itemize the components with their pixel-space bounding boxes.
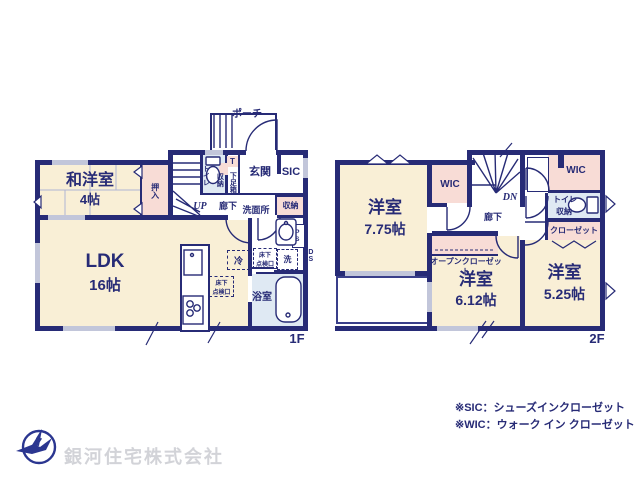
floor1-label: 1F <box>282 331 312 347</box>
window <box>63 326 115 331</box>
company-logo-icon <box>12 424 62 472</box>
toilet-label-1f: トイレ <box>201 158 209 192</box>
ldk-size: 16帖 <box>55 277 155 295</box>
wall <box>520 240 525 326</box>
wall <box>275 197 277 215</box>
sic-label: SIC <box>278 166 304 179</box>
wall <box>168 150 173 218</box>
hallway-label-2f: 廊下 <box>478 212 508 223</box>
stairs-up-label: UP <box>188 201 212 213</box>
wic-entry-strip <box>527 157 549 192</box>
toilet-storage-label: 収納 <box>215 167 223 193</box>
open-closet-fill <box>432 236 498 256</box>
kitchen-counter <box>180 244 210 332</box>
balcony <box>336 276 432 324</box>
window <box>437 326 478 331</box>
wall <box>432 231 498 236</box>
window <box>48 215 85 220</box>
room3-name: 洋室 <box>527 263 602 283</box>
bird-wing <box>32 429 42 446</box>
entrance-opening <box>246 150 276 155</box>
shoe-box-t-label: T <box>228 157 237 167</box>
washer-space: 洗 <box>277 249 298 270</box>
fridge-space: 冷 <box>227 250 250 270</box>
wall <box>472 150 605 155</box>
floor2-label: 2F <box>582 331 612 347</box>
wall <box>432 203 447 207</box>
room3-size: 5.25帖 <box>527 286 602 303</box>
wall <box>248 302 252 326</box>
room2-size: 6.12帖 <box>432 292 520 309</box>
hatch-label: 床下 点検口 <box>212 278 230 296</box>
ps-label: PS <box>293 227 301 245</box>
entrance-label: 玄関 <box>240 166 280 179</box>
wall <box>432 254 498 256</box>
ds-label: DS <box>306 247 314 265</box>
washitsu-name: 和洋室 <box>40 171 140 190</box>
ldk-name: LDK <box>55 251 155 274</box>
wall <box>274 270 303 274</box>
bird-shape <box>16 438 52 454</box>
floor-plan-canvas: 冷 床下 点検口 洗 床下 点検口 ポーチ 玄関 SIC T 下足箱 トイレ 収… <box>0 0 640 480</box>
wall <box>548 190 600 193</box>
wall <box>277 215 303 218</box>
toilet-label-2f: トイレ <box>550 195 580 205</box>
wall <box>468 203 472 207</box>
room1-name: 洋室 <box>345 198 425 218</box>
washer-label: 洗 <box>284 254 292 265</box>
logo-flourish <box>35 430 42 448</box>
wall <box>173 215 228 220</box>
wall <box>140 165 142 215</box>
porch-label: ポーチ <box>222 109 272 121</box>
washroom-label: 洗面所 <box>238 205 274 216</box>
mini-hall-fill <box>525 193 545 240</box>
shoe-box-label: 下足箱 <box>228 168 236 196</box>
hall-storage-label: 収納 <box>279 201 302 211</box>
washitsu-size: 4帖 <box>40 192 140 208</box>
bath-label: 浴室 <box>248 292 276 304</box>
window <box>345 271 415 276</box>
wall <box>335 160 475 165</box>
wall <box>600 150 605 331</box>
wall <box>335 160 340 276</box>
wall <box>545 193 548 240</box>
underfloor-hatch: 床下 点検口 <box>253 248 277 269</box>
stairs-dn-label: DN <box>498 192 522 204</box>
room2-name: 洋室 <box>432 270 520 290</box>
hatch-label: 床下 点検口 <box>256 250 274 268</box>
closet-label: クローゼット <box>549 226 599 236</box>
underfloor-hatch: 床下 点検口 <box>209 276 234 297</box>
fridge-label: 冷 <box>234 254 243 267</box>
wic-left-label: WIC <box>432 179 468 191</box>
note-wic: ※WIC：ウォーク イン クローゼット <box>455 416 635 432</box>
oshiire-label: 押入 <box>150 176 160 206</box>
wic-right-label: WIC <box>556 165 596 177</box>
wall <box>548 218 600 222</box>
note-sic: ※SIC：シューズインクローゼット <box>455 399 625 415</box>
window <box>52 160 88 165</box>
window <box>205 150 223 155</box>
room1-size: 7.75帖 <box>345 221 425 238</box>
wall <box>275 195 303 197</box>
toilet-storage-label-2f: 収納 <box>550 207 578 217</box>
window <box>35 243 40 283</box>
company-name: 銀河住宅株式会社 <box>64 443 224 469</box>
